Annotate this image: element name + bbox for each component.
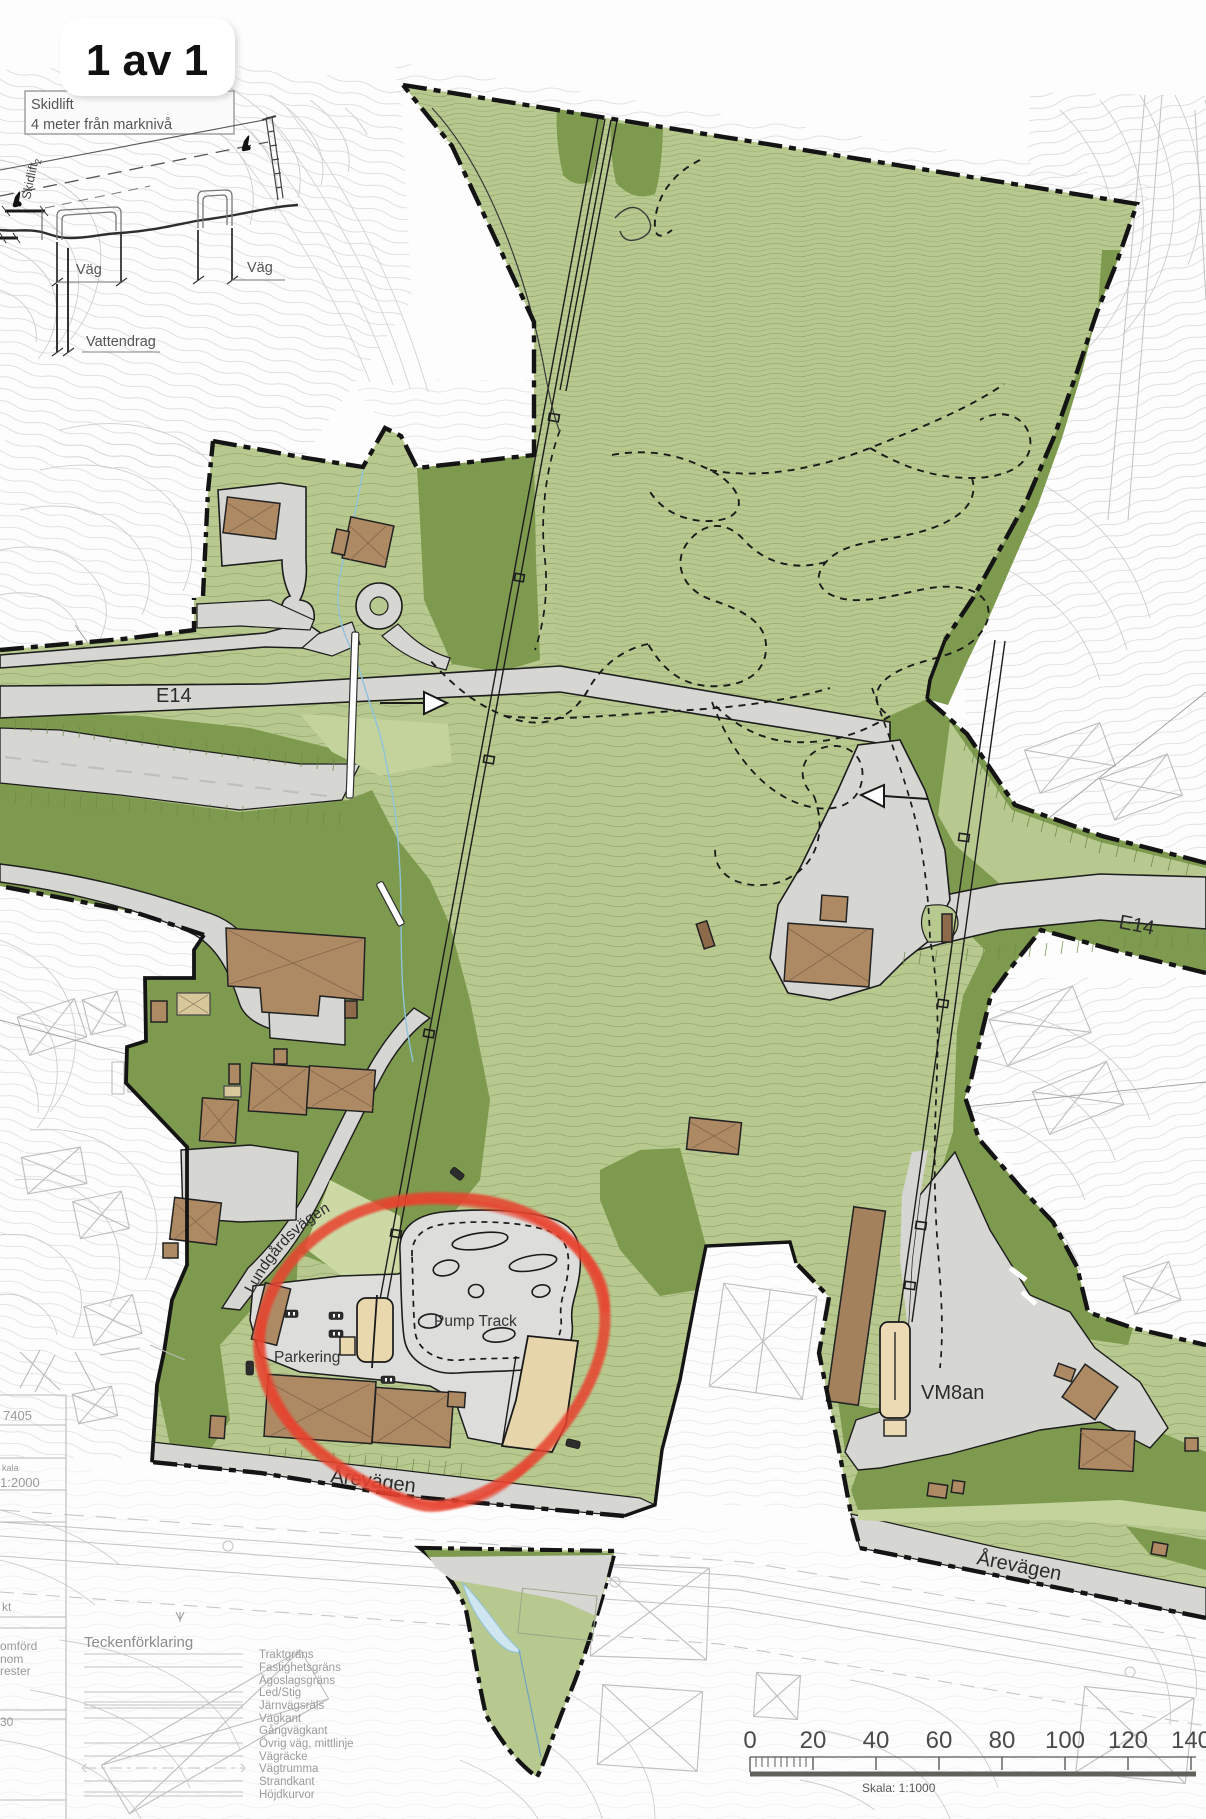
svg-text:Traktgräns: Traktgräns — [259, 1649, 314, 1661]
svg-text:140: 140 — [1171, 1727, 1206, 1754]
svg-text:rester: rester — [0, 1664, 31, 1678]
svg-text:Höjdkurvor: Höjdkurvor — [259, 1789, 315, 1801]
svg-text:Strandkant: Strandkant — [259, 1776, 315, 1788]
svg-text:Ägoslagsgräns: Ägoslagsgräns — [259, 1675, 335, 1687]
svg-text:30: 30 — [0, 1715, 14, 1729]
svg-text:7405: 7405 — [3, 1408, 32, 1423]
svg-text:Vägkant: Vägkant — [259, 1713, 302, 1725]
svg-text:Övrig väg, mittlinje: Övrig väg, mittlinje — [259, 1738, 354, 1750]
svg-text:Fastighetsgräns: Fastighetsgräns — [259, 1662, 341, 1674]
svg-text:Vägtrumma: Vägtrumma — [259, 1763, 319, 1775]
svg-text:Teckenförklaring: Teckenförklaring — [84, 1634, 193, 1651]
svg-text:Järnvägsräls: Järnvägsräls — [259, 1700, 324, 1712]
svg-text:Skidlift: Skidlift — [31, 97, 74, 113]
svg-text:Vattendrag: Vattendrag — [86, 334, 156, 350]
svg-text:VM8an: VM8an — [921, 1382, 984, 1404]
svg-text:60: 60 — [926, 1727, 953, 1754]
svg-text:20: 20 — [800, 1727, 827, 1754]
svg-text:Vägräcke: Vägräcke — [259, 1751, 308, 1763]
svg-text:Parkering: Parkering — [274, 1349, 340, 1366]
svg-text:Skala: 1:1000: Skala: 1:1000 — [862, 1781, 936, 1795]
svg-text:120: 120 — [1108, 1727, 1148, 1754]
svg-text:1:2000: 1:2000 — [0, 1475, 40, 1490]
svg-text:E14: E14 — [156, 685, 192, 707]
svg-text:1 av 1: 1 av 1 — [86, 36, 208, 85]
svg-text:40: 40 — [863, 1727, 890, 1754]
svg-text:kala: kala — [2, 1463, 19, 1473]
svg-text:4 meter från marknivå: 4 meter från marknivå — [31, 117, 173, 133]
svg-text:100: 100 — [1045, 1727, 1085, 1754]
svg-text:Väg: Väg — [76, 262, 102, 278]
svg-text:80: 80 — [989, 1727, 1016, 1754]
svg-text:Led/Stig: Led/Stig — [259, 1687, 301, 1699]
svg-text:Pump Track: Pump Track — [434, 1313, 517, 1330]
svg-text:Gångvägkant: Gångvägkant — [259, 1725, 328, 1737]
svg-text:Väg: Väg — [247, 260, 273, 276]
svg-text:omförd: omförd — [0, 1639, 37, 1653]
svg-text:0: 0 — [743, 1727, 756, 1754]
svg-text:kt: kt — [2, 1600, 12, 1614]
